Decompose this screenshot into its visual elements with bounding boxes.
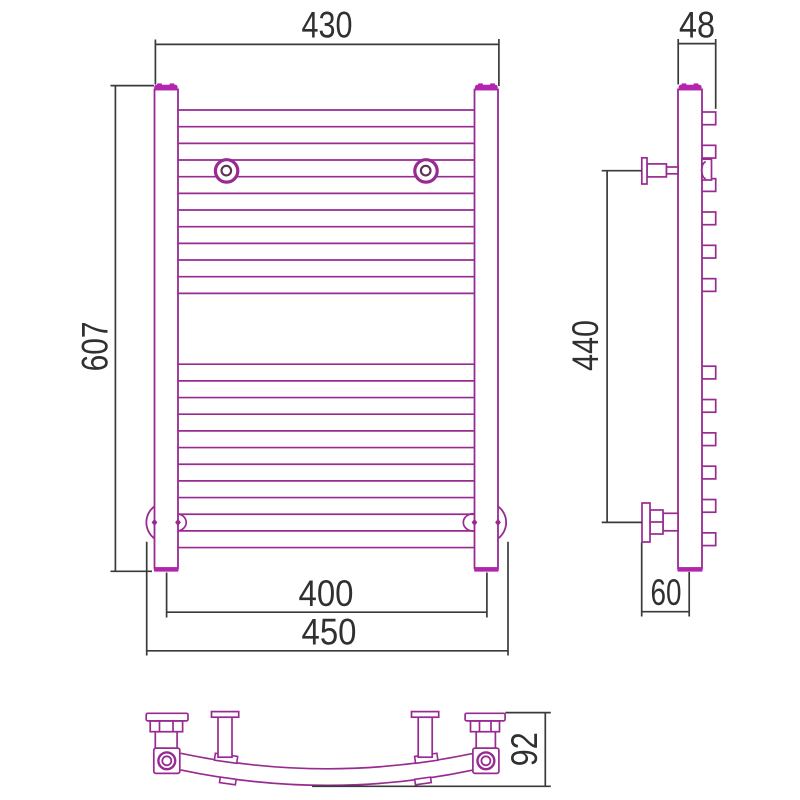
svg-text:92: 92 bbox=[503, 732, 545, 766]
svg-text:60: 60 bbox=[651, 571, 682, 613]
svg-text:607: 607 bbox=[74, 321, 116, 371]
svg-text:450: 450 bbox=[302, 611, 357, 653]
svg-text:400: 400 bbox=[299, 572, 354, 614]
svg-text:440: 440 bbox=[564, 320, 606, 371]
svg-text:48: 48 bbox=[679, 3, 715, 45]
svg-text:430: 430 bbox=[302, 4, 353, 46]
